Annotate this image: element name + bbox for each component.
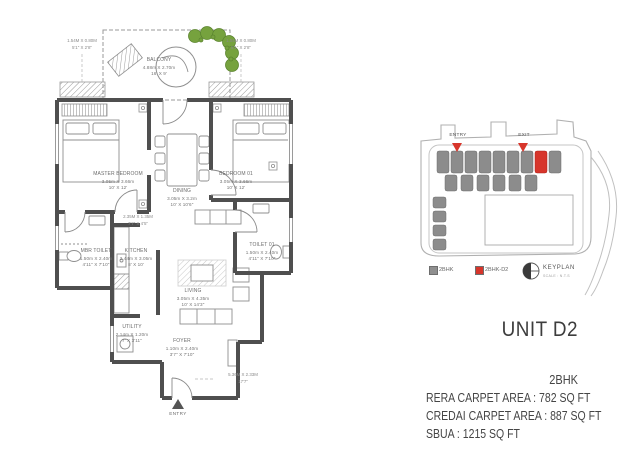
room-name: FOYER <box>153 338 211 346</box>
unit-title: UNIT D2 <box>441 318 578 342</box>
dim-imperial: 17'7" <box>213 379 273 386</box>
room-dim-imperial: 10' X 14'3" <box>166 302 220 309</box>
room-dim-imperial: 8' X 10' <box>107 262 165 269</box>
dim-label-bottom: 5.36M X 2.33M 17'7" <box>213 372 273 385</box>
dim-label-passage: 2.35M X 1.35M 7'7" X 4'5" <box>109 214 167 227</box>
room-dim-imperial: 16' X 9' <box>131 71 187 78</box>
room-dim-metric: 3.05m X 3.2m <box>154 196 210 203</box>
room-dim-imperial: 3'7" X 7'10" <box>153 352 211 359</box>
room-label-living: LIVING 3.05m X 4.35m 10' X 14'3" <box>166 288 220 309</box>
credai-carpet-area: CREDAI CARPET AREA : 887 SQ FT <box>426 407 554 425</box>
room-dim-metric: 1.50m X 2.40m <box>233 250 291 257</box>
room-name: BEDROOM 01 <box>205 171 267 179</box>
dim-imperial: 5'1" X 2'8" <box>215 45 267 52</box>
room-label-balcony: BALCONY 4.88m X 2.70m 16' X 9' <box>131 57 187 78</box>
dim-label-top-right: 1.54M X 0.80M 5'1" X 2'8" <box>215 38 267 51</box>
dim-imperial: 7'7" X 4'5" <box>109 221 167 228</box>
room-dim-imperial: 4'11" X 7'10" <box>233 256 291 263</box>
key-plan: ENTRY EXIT 2BHK 2BHK-D2 KEYPLAN SCALE : … <box>405 85 623 297</box>
legend-label-2bhk: 2BHK <box>439 267 453 273</box>
dim-metric: 1.54M X 0.80M <box>215 38 267 45</box>
room-label-master-bedroom: MASTER BEDROOM 3.05m X 3.66m 10' X 12' <box>87 171 149 192</box>
room-label-kitchen: KITCHEN 2.44m X 3.05m 8' X 10' <box>107 248 165 269</box>
room-name: UTILITY <box>103 324 161 332</box>
room-dim-metric: 1.10m X 2.40m <box>153 346 211 353</box>
unit-info: UNIT D2 2BHK RERA CARPET AREA : 782 SQ F… <box>426 318 578 443</box>
floor-plan-drawing <box>45 20 315 440</box>
compass-label: KEYPLAN <box>543 265 575 271</box>
keyplan-entry-label: ENTRY <box>441 133 475 138</box>
room-dim-imperial: 10' X 10'6" <box>154 202 210 209</box>
room-name: KITCHEN <box>107 248 165 256</box>
room-name: DINING <box>154 188 210 196</box>
room-name: MASTER BEDROOM <box>87 171 149 179</box>
room-dim-imperial: 10' X 12' <box>205 185 267 192</box>
entry-label: ENTRY <box>158 411 198 416</box>
compass-scale-note: SCALE : N.T.S <box>543 274 570 278</box>
room-dim-metric: 2.44m X 3.05m <box>107 256 165 263</box>
floor-plan: BALCONY 4.88m X 2.70m 16' X 9' MASTER BE… <box>45 20 315 440</box>
dim-metric: 1.54M X 0.80M <box>56 38 108 45</box>
brochure-page: BALCONY 4.88m X 2.70m 16' X 9' MASTER BE… <box>0 0 640 450</box>
room-label-dining: DINING 3.05m X 3.2m 10' X 10'6" <box>154 188 210 209</box>
legend-swatch-2bhk-d2 <box>475 266 484 275</box>
legend-label-2bhk-d2: 2BHK-D2 <box>485 267 508 273</box>
rera-carpet-area: RERA CARPET AREA : 782 SQ FT <box>426 389 554 407</box>
unit-type: 2BHK <box>444 371 578 389</box>
room-dim-imperial: 10' X 12' <box>87 185 149 192</box>
room-dim-metric: 3.05m X 3.66m <box>87 179 149 186</box>
dim-metric: 5.36M X 2.33M <box>213 372 273 379</box>
legend-swatch-2bhk <box>429 266 438 275</box>
keyplan-exit-label: EXIT <box>507 133 541 138</box>
room-label-foyer: FOYER 1.10m X 2.40m 3'7" X 7'10" <box>153 338 211 359</box>
room-dim-metric: 3.05m X 4.35m <box>166 296 220 303</box>
room-dim-metric: 3.05m X 3.66m <box>205 179 267 186</box>
dim-metric: 2.35M X 1.35M <box>109 214 167 221</box>
room-label-bedroom-01: BEDROOM 01 3.05m X 3.66m 10' X 12' <box>205 171 267 192</box>
dim-imperial: 5'1" X 2'8" <box>56 45 108 52</box>
room-name: LIVING <box>166 288 220 296</box>
room-name: BALCONY <box>131 57 187 65</box>
room-name: TOILET 01 <box>233 242 291 250</box>
room-dim-metric: 4.88m X 2.70m <box>131 65 187 72</box>
sbua-area: SBUA : 1215 SQ FT <box>426 425 554 443</box>
room-label-toilet-01: TOILET 01 1.50m X 2.40m 4'11" X 7'10" <box>233 242 291 263</box>
dim-label-top-left: 1.54M X 0.80M 5'1" X 2'8" <box>56 38 108 51</box>
